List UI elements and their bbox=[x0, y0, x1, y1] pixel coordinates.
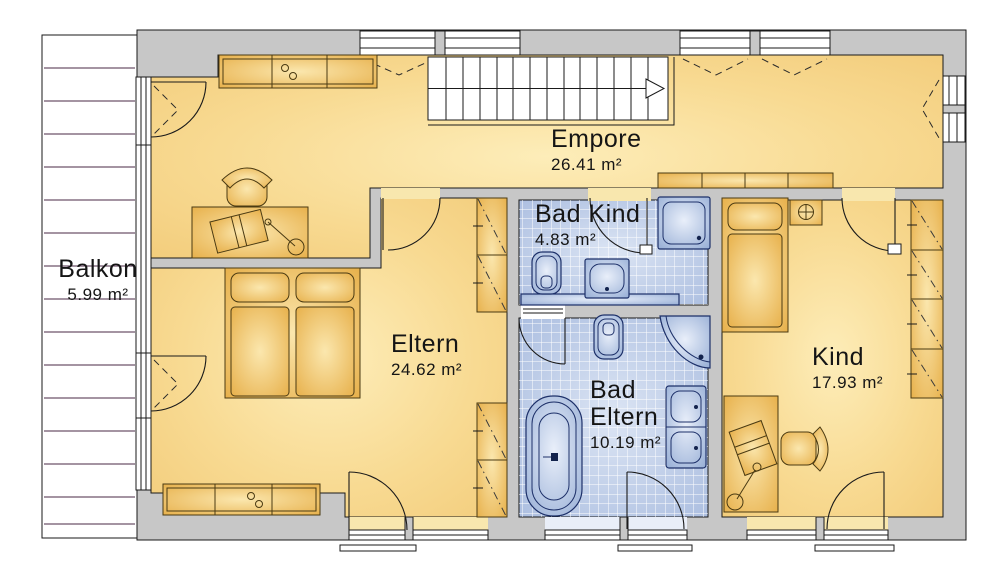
room-name-balkon: Balkon bbox=[54, 256, 142, 283]
room-area-kind: 17.93 m² bbox=[812, 372, 912, 393]
washbasin-bad-kind bbox=[585, 259, 629, 298]
room-label-kind: Kind 17.93 m² bbox=[812, 344, 912, 393]
door-opening-kind bbox=[842, 188, 895, 201]
wall-cabinet-empore bbox=[219, 55, 377, 88]
room-name-empore: Empore bbox=[551, 126, 671, 153]
desk-kind bbox=[724, 396, 778, 512]
room-name-bad-kind: Bad Kind bbox=[535, 201, 665, 228]
room-label-eltern: Eltern 24.62 m² bbox=[391, 331, 491, 380]
pillow bbox=[231, 273, 289, 302]
bathtub-bad-eltern bbox=[526, 396, 582, 516]
door-opening-eltern bbox=[381, 188, 440, 199]
sideboard-eltern bbox=[163, 484, 320, 515]
room-name-eltern: Eltern bbox=[391, 331, 491, 358]
shelf-empore bbox=[658, 173, 833, 188]
pillow bbox=[728, 203, 782, 230]
nightstand-kind bbox=[790, 200, 822, 225]
room-label-empore: Empore 26.41 m² bbox=[551, 126, 671, 175]
room-label-balkon: Balkon 5.99 m² bbox=[54, 256, 142, 305]
mattress bbox=[231, 307, 289, 396]
floor-plan-drawing bbox=[0, 0, 1000, 571]
room-label-bad-kind: Bad Kind 4.83 m² bbox=[535, 201, 665, 250]
toilet-bad-eltern bbox=[594, 315, 623, 359]
room-name-kind: Kind bbox=[812, 344, 912, 371]
toilet-bad-kind bbox=[532, 252, 561, 294]
office-chair-empore bbox=[222, 168, 272, 206]
room-name-bad-eltern: Bad Eltern bbox=[590, 377, 670, 431]
wardrobe-eltern-top bbox=[473, 198, 507, 312]
room-area-balkon: 5.99 m² bbox=[54, 284, 142, 305]
single-bed-kind bbox=[722, 198, 788, 332]
room-area-eltern: 24.62 m² bbox=[391, 359, 491, 380]
double-bed-eltern bbox=[225, 268, 360, 398]
window-sill bbox=[618, 545, 692, 551]
shower-bad-kind bbox=[658, 197, 710, 249]
pillow bbox=[296, 273, 354, 302]
desk-empore bbox=[192, 207, 308, 258]
wardrobe-eltern-bottom bbox=[473, 403, 507, 517]
window-sill bbox=[340, 545, 416, 551]
wardrobe-kind bbox=[907, 200, 943, 398]
office-chair-kind bbox=[781, 427, 828, 471]
room-area-empore: 26.41 m² bbox=[551, 154, 671, 175]
door-hinge bbox=[888, 244, 901, 254]
double-washbasin-bad-eltern bbox=[666, 386, 706, 468]
bathtub-tap bbox=[551, 453, 558, 461]
mattress bbox=[296, 307, 354, 396]
floor-plan: Balkon 5.99 m² Empore 26.41 m² Bad Kind … bbox=[0, 0, 1000, 571]
room-label-bad-eltern: Bad Eltern 10.19 m² bbox=[590, 377, 670, 453]
room-area-bad-eltern: 10.19 m² bbox=[590, 432, 670, 453]
window-sill bbox=[815, 545, 894, 551]
door-opening-between-baths bbox=[521, 304, 565, 319]
staircase bbox=[428, 57, 674, 125]
mattress bbox=[728, 234, 782, 327]
room-area-bad-kind: 4.83 m² bbox=[535, 229, 665, 250]
